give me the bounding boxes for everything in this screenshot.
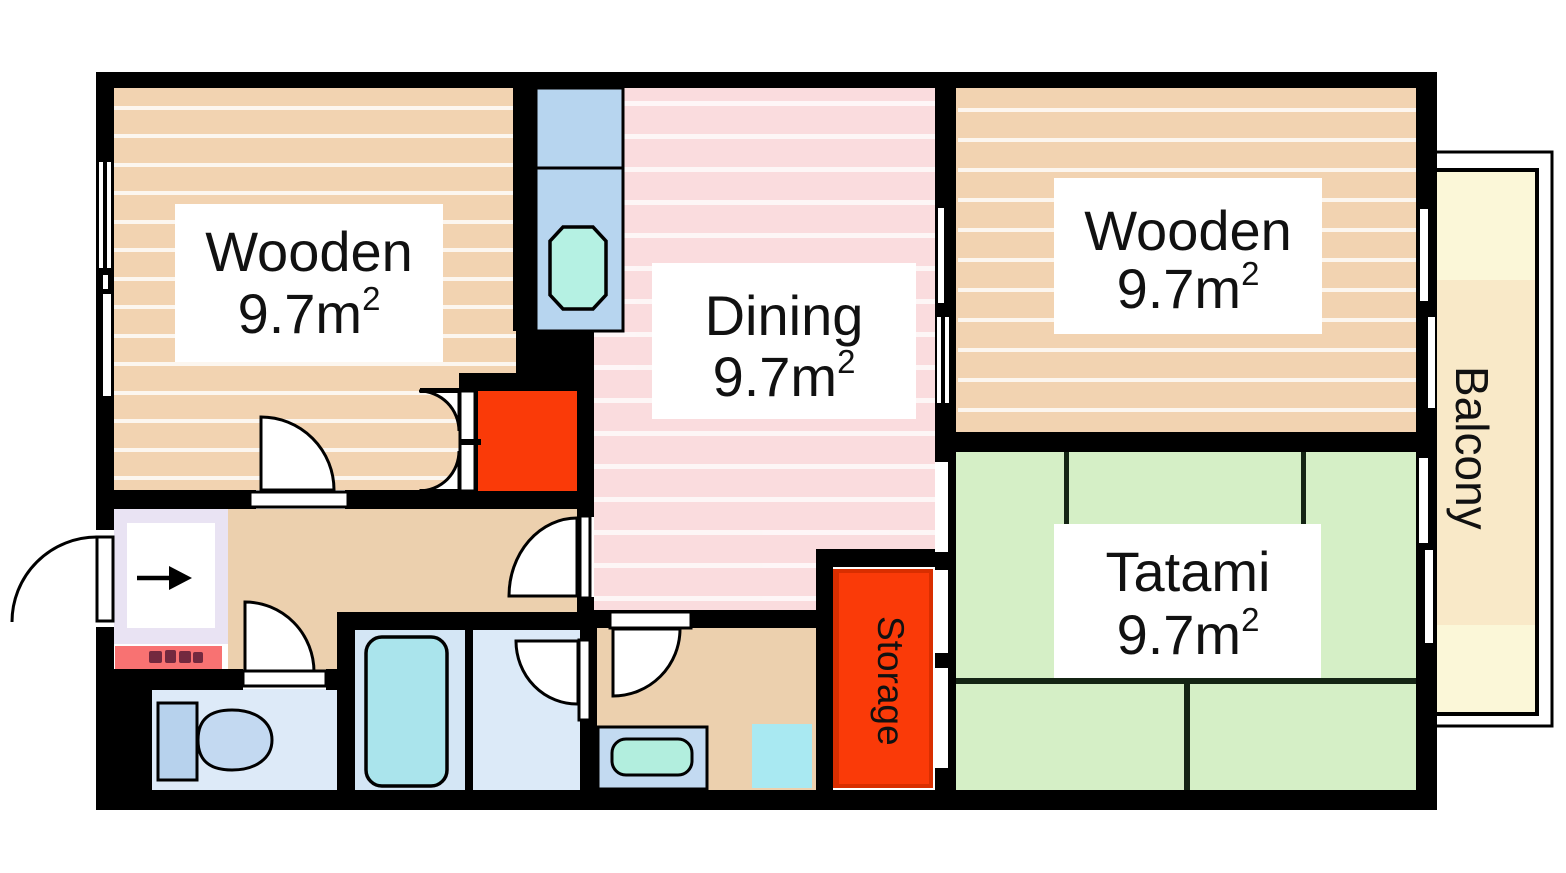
svg-text:Wooden: Wooden <box>205 220 413 283</box>
svg-text:Balcony: Balcony <box>1446 366 1498 530</box>
svg-text:9.7m2: 9.7m2 <box>238 280 381 345</box>
svg-text:9.7m2: 9.7m2 <box>1117 601 1260 666</box>
svg-text:9.7m2: 9.7m2 <box>1117 255 1260 320</box>
svg-text:9.7m2: 9.7m2 <box>713 343 856 408</box>
svg-text:Wooden: Wooden <box>1084 199 1292 262</box>
svg-text:Dining: Dining <box>705 284 864 347</box>
svg-text:Storage: Storage <box>870 616 911 746</box>
svg-text:Tatami: Tatami <box>1106 540 1271 603</box>
